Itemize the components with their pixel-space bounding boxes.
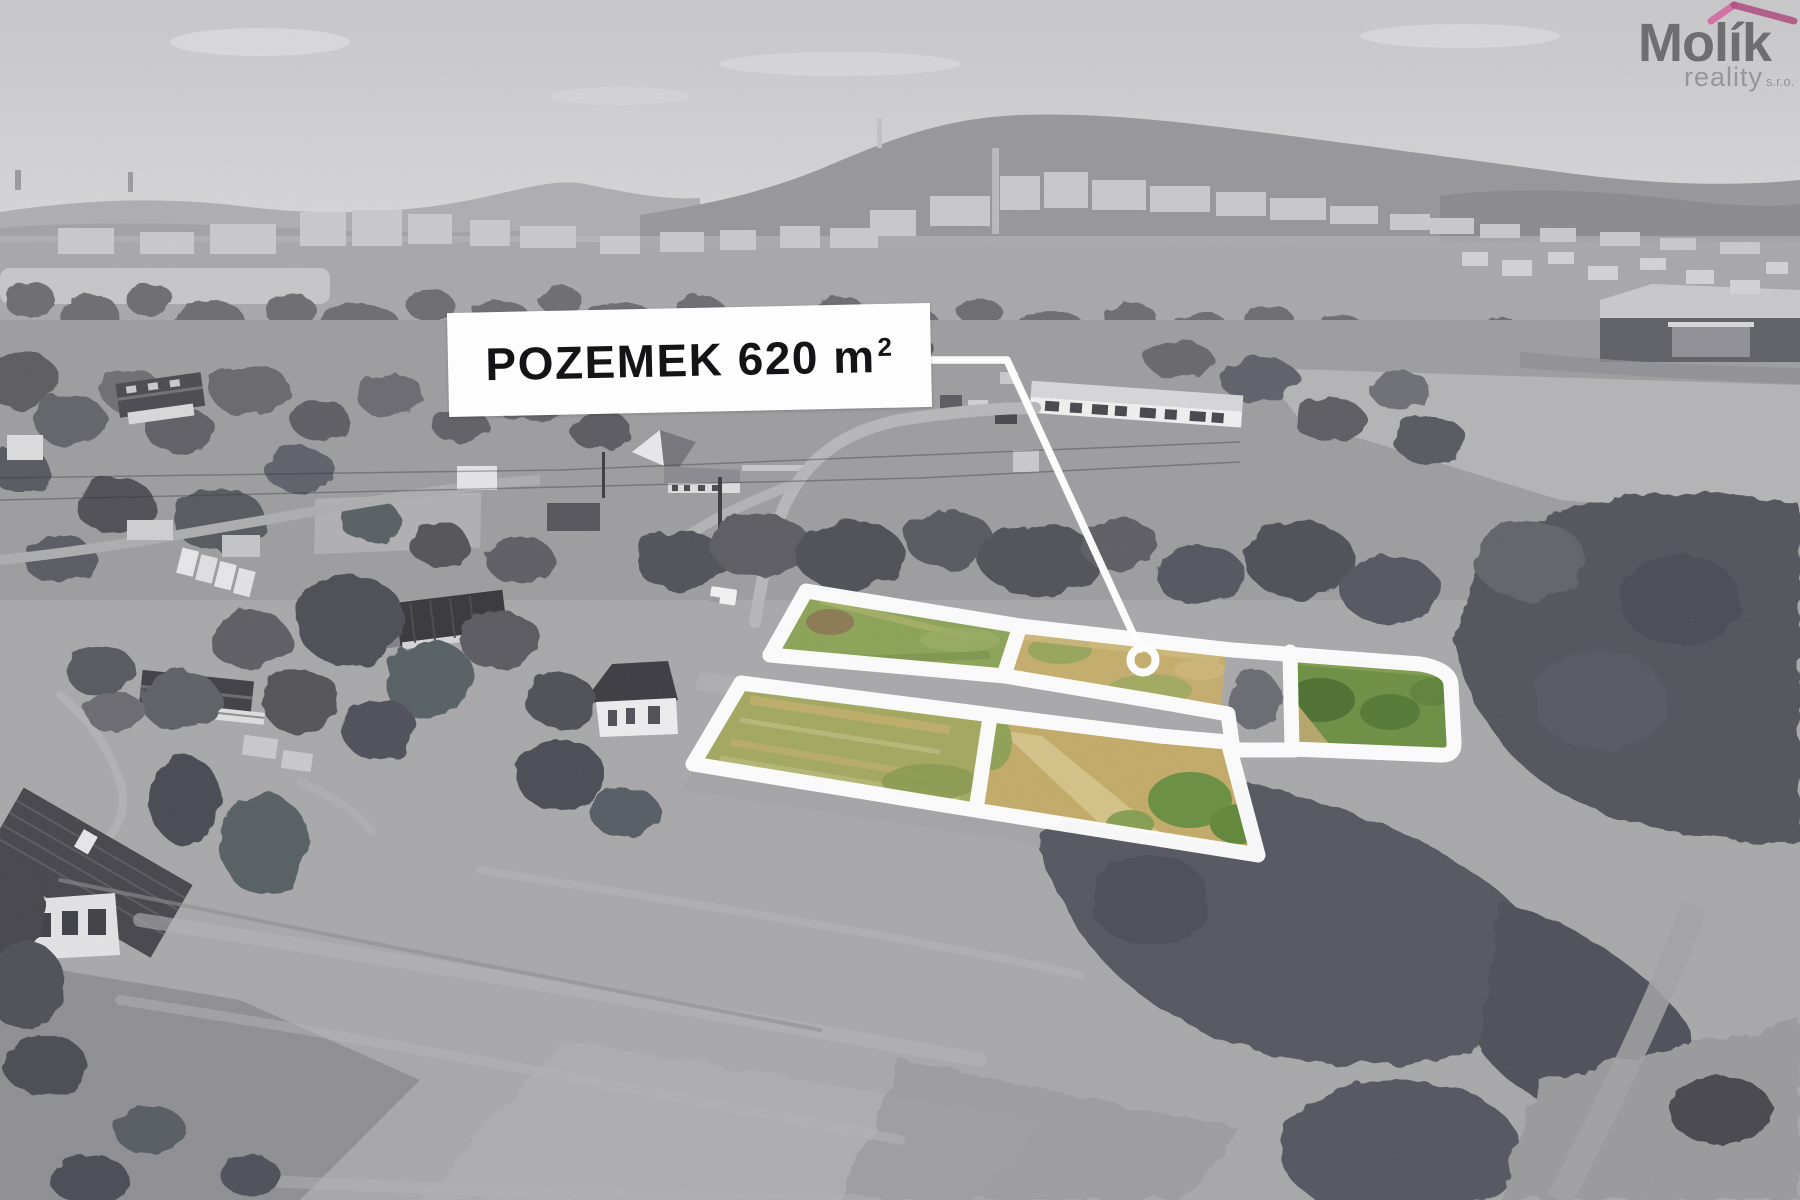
area-callout-label: POZEMEK 620 m2 bbox=[447, 303, 932, 417]
brand-watermark: Molík reality s.r.o. bbox=[1628, 0, 1800, 104]
aerial-photo: POZEMEK 620 m2 Molík reality s.r.o. bbox=[0, 0, 1800, 1200]
brand-subtitle: reality bbox=[1684, 62, 1763, 93]
photo-scene bbox=[0, 0, 1800, 1200]
brand-suffix: s.r.o. bbox=[1766, 74, 1794, 89]
area-superscript: 2 bbox=[877, 331, 894, 361]
area-callout-text: POZEMEK 620 m2 bbox=[485, 329, 894, 392]
photo-grain bbox=[0, 0, 1800, 1200]
